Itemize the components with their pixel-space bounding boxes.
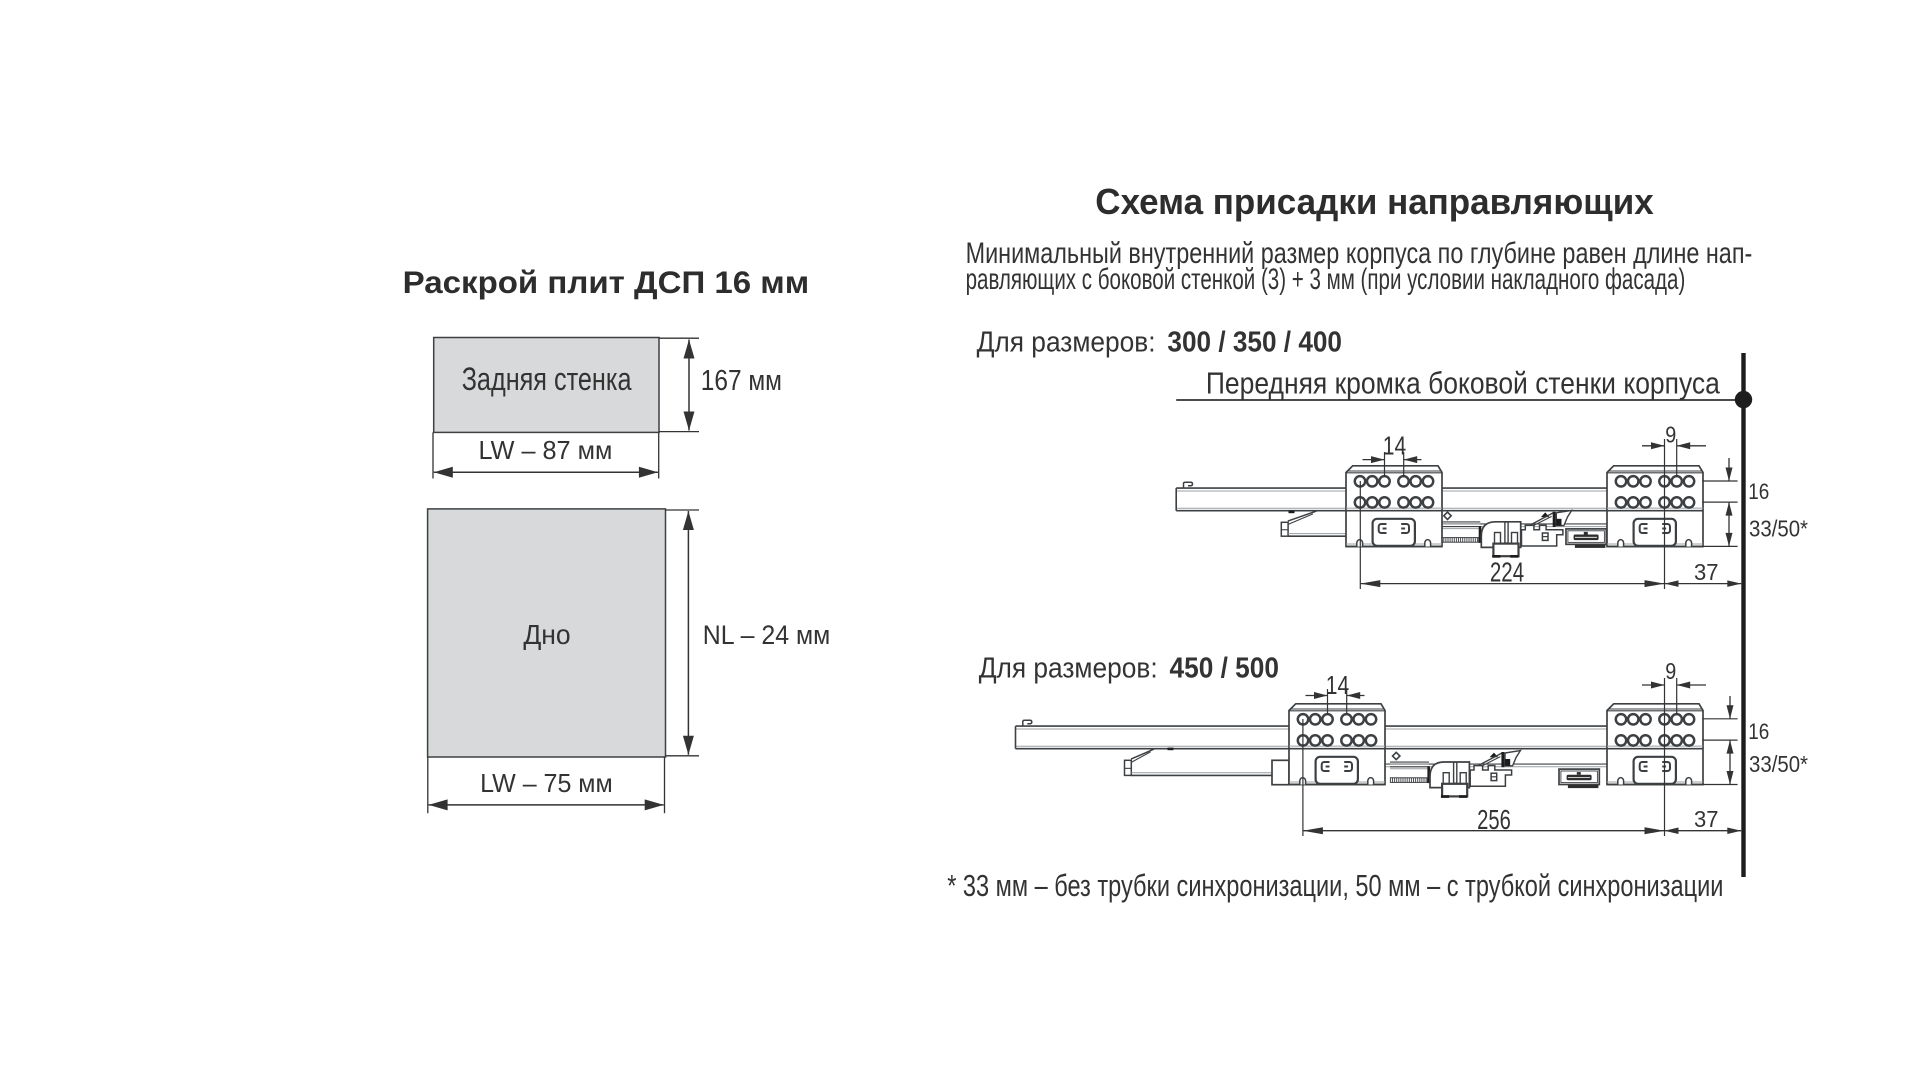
svg-text:Передняя кромка боковой стенки: Передняя кромка боковой стенки корпуса: [1206, 366, 1720, 400]
svg-text:Схема присадки направляющих: Схема присадки направляющих: [1095, 181, 1654, 222]
svg-text:LW – 75 мм: LW – 75 мм: [480, 768, 613, 798]
svg-text:33/50*: 33/50*: [1749, 515, 1808, 541]
svg-text:LW – 87 мм: LW – 87 мм: [478, 435, 612, 465]
svg-text:* 33 мм – без трубки синхрониз: * 33 мм – без трубки синхронизации, 50 м…: [947, 868, 1723, 903]
svg-text:33/50*: 33/50*: [1749, 751, 1808, 777]
svg-text:равляющих с боковой стенкой (3: равляющих с боковой стенкой (3) + 3 мм (…: [966, 263, 1686, 296]
svg-text:NL – 24 мм: NL – 24 мм: [703, 620, 830, 650]
svg-text:16: 16: [1748, 479, 1769, 504]
svg-text:256: 256: [1477, 804, 1511, 835]
svg-text:14: 14: [1383, 431, 1406, 461]
svg-text:Раскрой плит ДСП 16 мм: Раскрой плит ДСП 16 мм: [403, 264, 810, 300]
svg-text:14: 14: [1326, 670, 1349, 700]
svg-text:16: 16: [1748, 719, 1769, 744]
svg-text:9: 9: [1665, 422, 1676, 448]
svg-text:224: 224: [1490, 557, 1524, 588]
svg-text:450 / 500: 450 / 500: [1170, 652, 1280, 684]
svg-text:300 / 350 / 400: 300 / 350 / 400: [1167, 326, 1342, 358]
svg-text:37: 37: [1694, 806, 1719, 832]
svg-text:Для размеров:: Для размеров:: [977, 326, 1156, 358]
svg-text:9: 9: [1665, 658, 1676, 684]
svg-text:Дно: Дно: [523, 619, 570, 650]
svg-text:37: 37: [1694, 559, 1719, 585]
svg-text:167 мм: 167 мм: [701, 365, 782, 397]
svg-text:Для размеров:: Для размеров:: [979, 652, 1158, 684]
svg-text:Задняя стенка: Задняя стенка: [462, 361, 632, 397]
